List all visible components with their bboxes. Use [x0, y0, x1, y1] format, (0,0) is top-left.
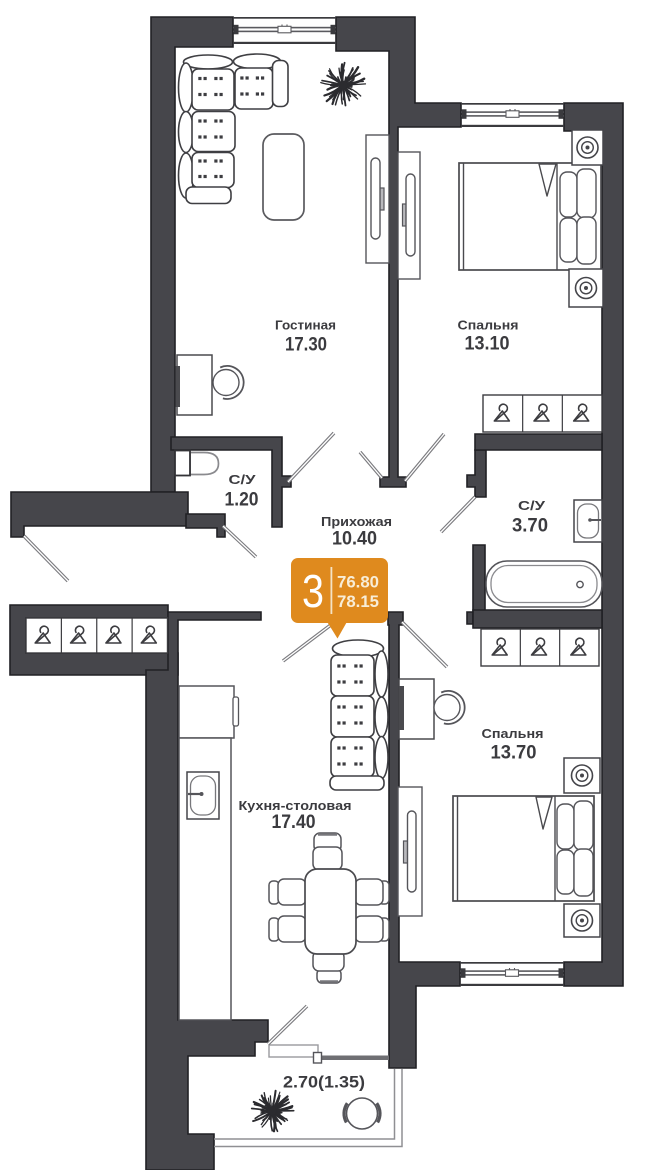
svg-text:Кухня-столовая: Кухня-столовая — [239, 798, 352, 813]
svg-text:78.15: 78.15 — [337, 592, 379, 611]
svg-text:17.40: 17.40 — [272, 812, 316, 833]
svg-text:Спальня: Спальня — [482, 726, 544, 741]
svg-text:10.40: 10.40 — [332, 529, 377, 550]
svg-text:3.70: 3.70 — [512, 516, 548, 537]
svg-text:13.10: 13.10 — [465, 334, 510, 355]
svg-text:17.30: 17.30 — [285, 335, 327, 356]
svg-text:С/У: С/У — [518, 499, 545, 513]
svg-text:76.80: 76.80 — [337, 573, 379, 592]
svg-text:С/У: С/У — [229, 473, 256, 487]
svg-text:Гостиная: Гостиная — [275, 318, 336, 333]
svg-text:Прихожая: Прихожая — [321, 514, 392, 529]
svg-text:13.70: 13.70 — [491, 743, 537, 764]
svg-text:2.70(1.35): 2.70(1.35) — [283, 1074, 365, 1092]
svg-text:Спальня: Спальня — [458, 318, 519, 333]
svg-text:1.20: 1.20 — [225, 490, 259, 511]
svg-text:3: 3 — [302, 565, 324, 617]
